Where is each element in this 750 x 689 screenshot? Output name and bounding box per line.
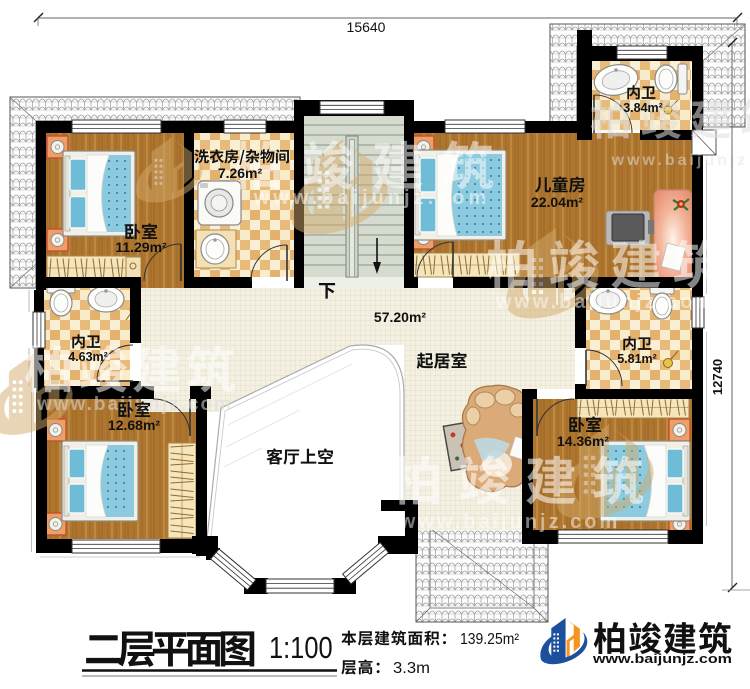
svg-text:1:100: 1:100: [269, 631, 333, 666]
svg-text:15640: 15640: [347, 19, 386, 35]
svg-text:14.36m²: 14.36m²: [557, 433, 609, 449]
svg-text:www.baijunjz.com: www.baijunjz.com: [36, 394, 233, 415]
svg-text:139.25m²: 139.25m²: [460, 631, 519, 648]
svg-text:www.baijunjz.com: www.baijunjz.com: [253, 187, 491, 209]
svg-text:www.baijunjz.com: www.baijunjz.com: [399, 511, 621, 533]
svg-text:12740: 12740: [710, 359, 725, 395]
svg-text:5.81m²: 5.81m²: [617, 352, 657, 366]
svg-text:11.29m²: 11.29m²: [115, 239, 167, 255]
svg-text:22.04m²: 22.04m²: [531, 194, 583, 210]
svg-text:12.68m²: 12.68m²: [108, 417, 160, 433]
svg-text:3.84m²: 3.84m²: [623, 101, 663, 115]
svg-text:www.baijunjz.com: www.baijunjz.com: [495, 291, 717, 313]
svg-text:www.baijunjz.com: www.baijunjz.com: [592, 652, 732, 666]
svg-text:57.20m²: 57.20m²: [374, 309, 426, 325]
svg-text:3.3m: 3.3m: [393, 660, 430, 677]
svg-text:4.63m²: 4.63m²: [68, 350, 108, 364]
svg-text:www.baijunjz: www.baijunjz: [611, 152, 749, 169]
svg-text:7.26m²: 7.26m²: [218, 165, 263, 181]
